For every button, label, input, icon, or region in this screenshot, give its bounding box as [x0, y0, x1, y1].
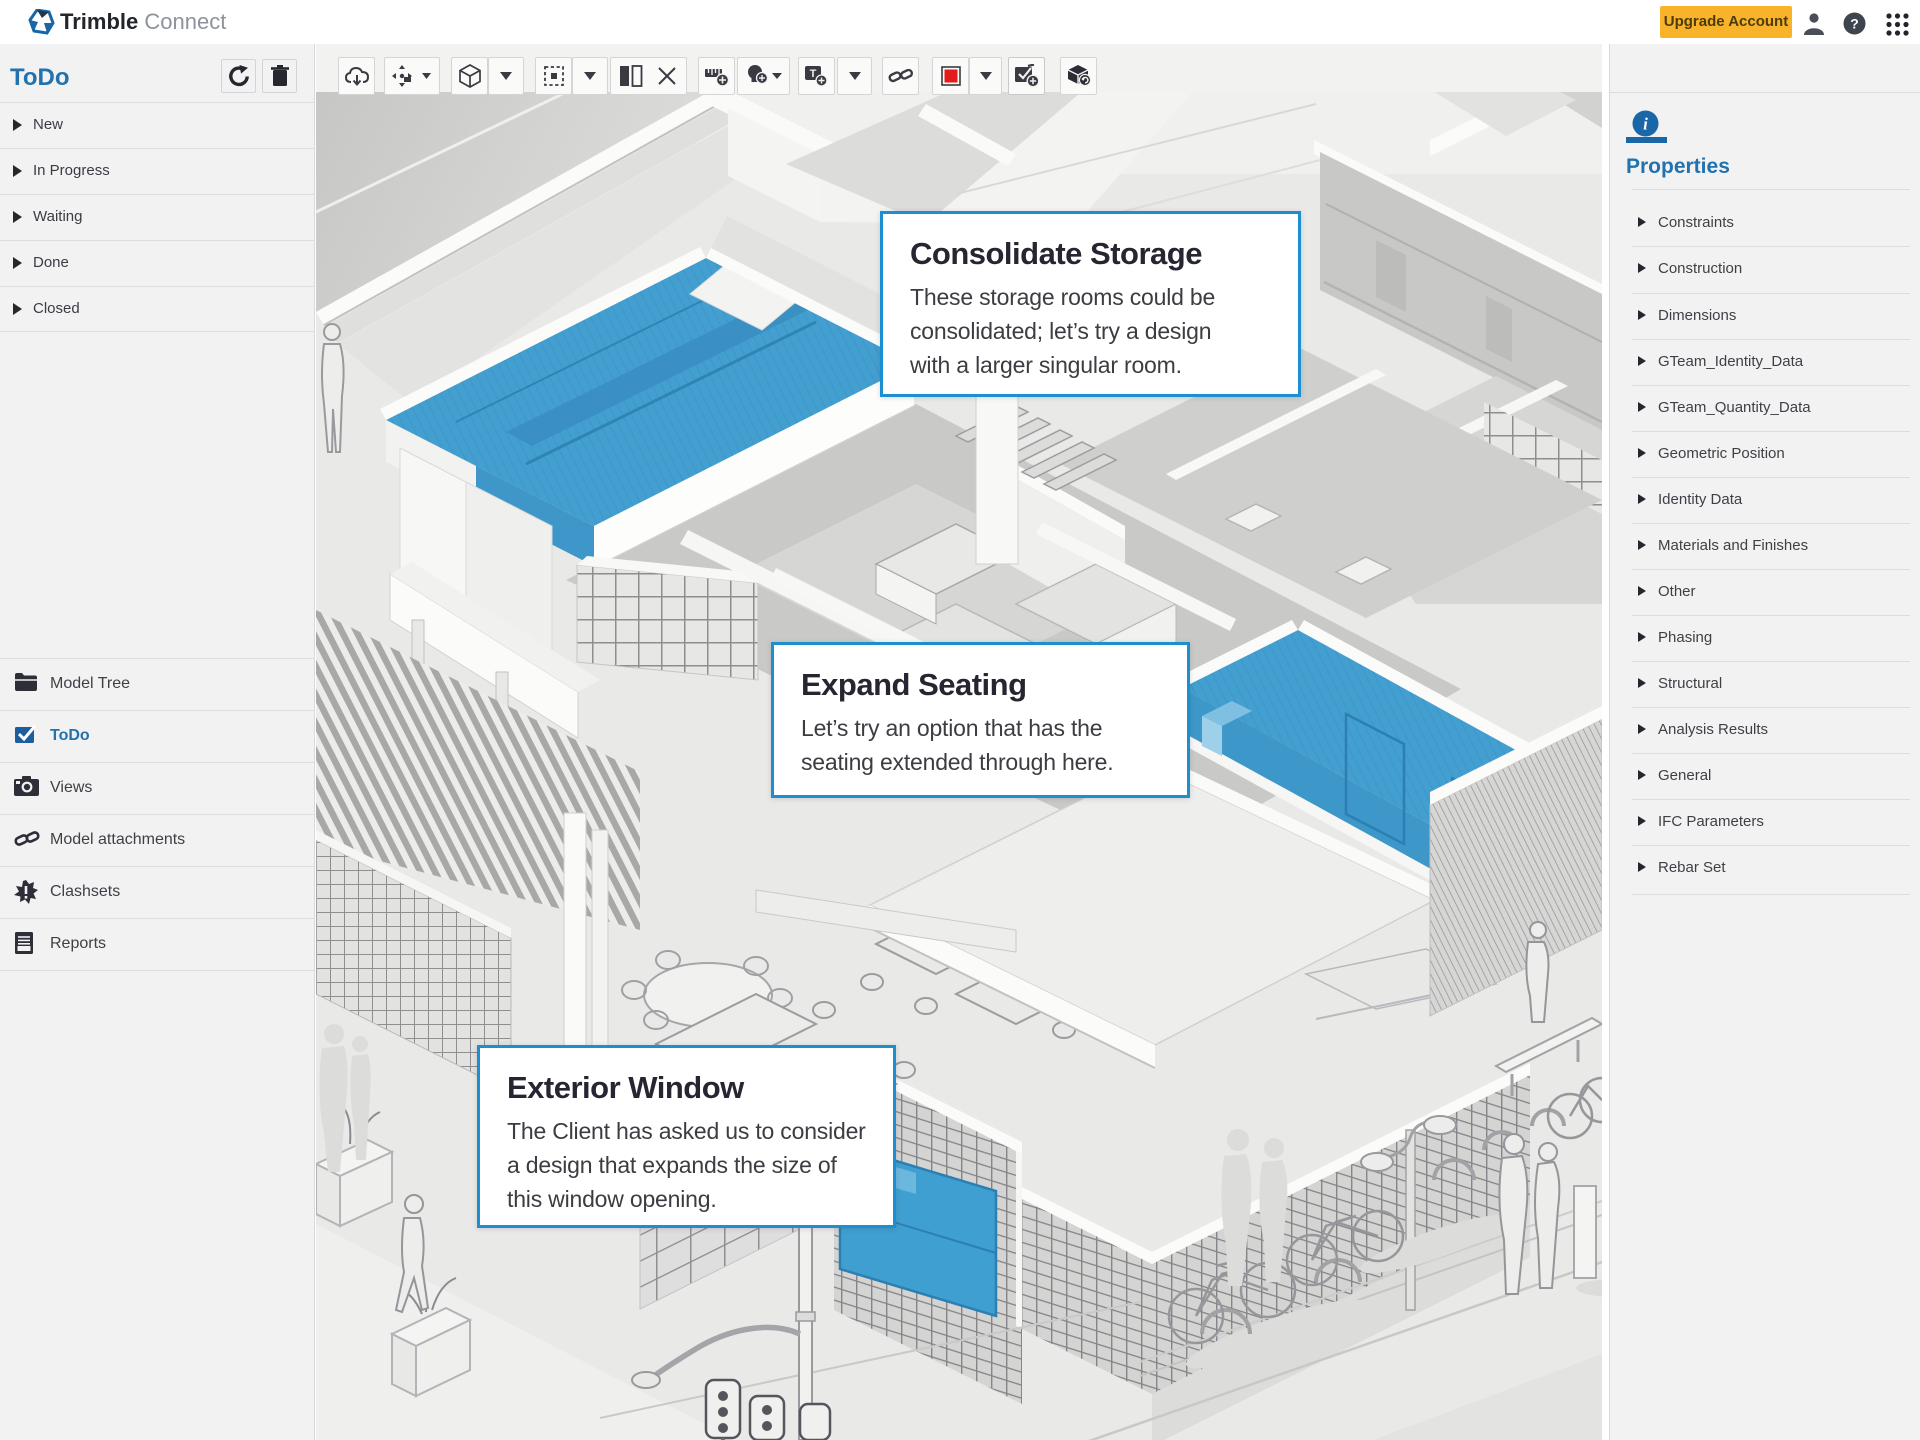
svg-text:?: ?: [1850, 16, 1859, 32]
svg-text:i: i: [1643, 115, 1648, 134]
svg-text:T: T: [809, 68, 816, 80]
